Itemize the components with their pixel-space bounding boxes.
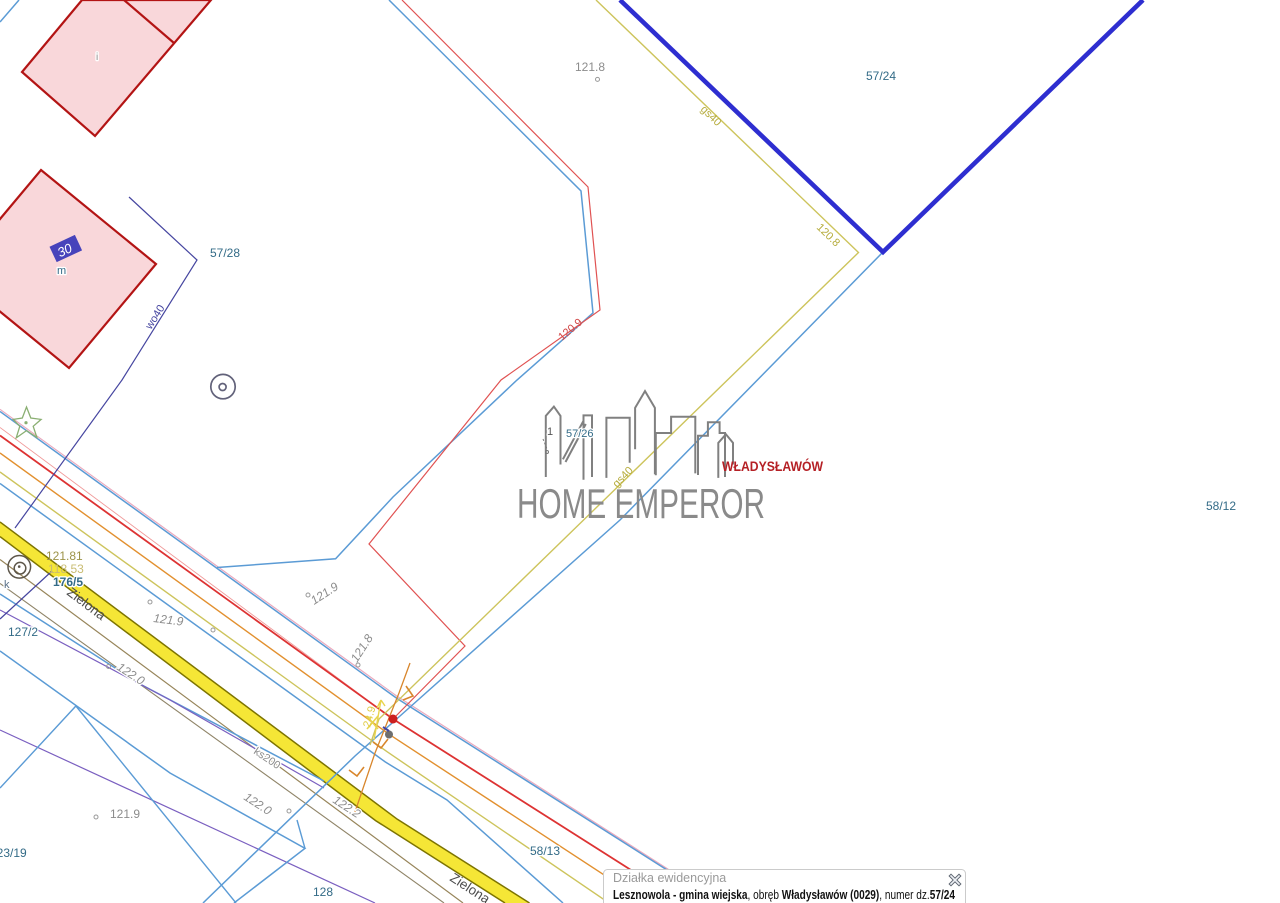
svg-text:121.81: 121.81	[46, 549, 83, 563]
svg-text:57/28: 57/28	[210, 246, 240, 260]
svg-text:Lesznowola - gmina wiejska, ob: Lesznowola - gmina wiejska, obręb Władys…	[613, 887, 956, 902]
svg-text:k: k	[4, 579, 10, 591]
svg-text:Działka ewidencyjna: Działka ewidencyjna	[613, 871, 726, 885]
svg-text:m: m	[57, 265, 66, 277]
svg-text:WŁADYSŁAWÓW: WŁADYSŁAWÓW	[722, 457, 824, 474]
svg-text:58/13: 58/13	[530, 844, 560, 858]
svg-text:121.8: 121.8	[575, 60, 605, 74]
svg-text:HOME EMPEROR: HOME EMPEROR	[517, 480, 765, 527]
svg-text:58/12: 58/12	[1206, 499, 1236, 513]
svg-text:127/2: 127/2	[8, 625, 38, 639]
svg-text:57/26: 57/26	[566, 428, 594, 440]
svg-text:123/19: 123/19	[0, 846, 27, 860]
svg-text:176/5: 176/5	[53, 575, 83, 589]
svg-text:128: 128	[313, 885, 333, 899]
svg-text:121.9: 121.9	[110, 807, 140, 821]
svg-text:118.53: 118.53	[48, 562, 84, 576]
svg-text:i: i	[96, 52, 98, 63]
svg-text:57/24: 57/24	[866, 69, 896, 83]
svg-text:1: 1	[547, 426, 553, 438]
